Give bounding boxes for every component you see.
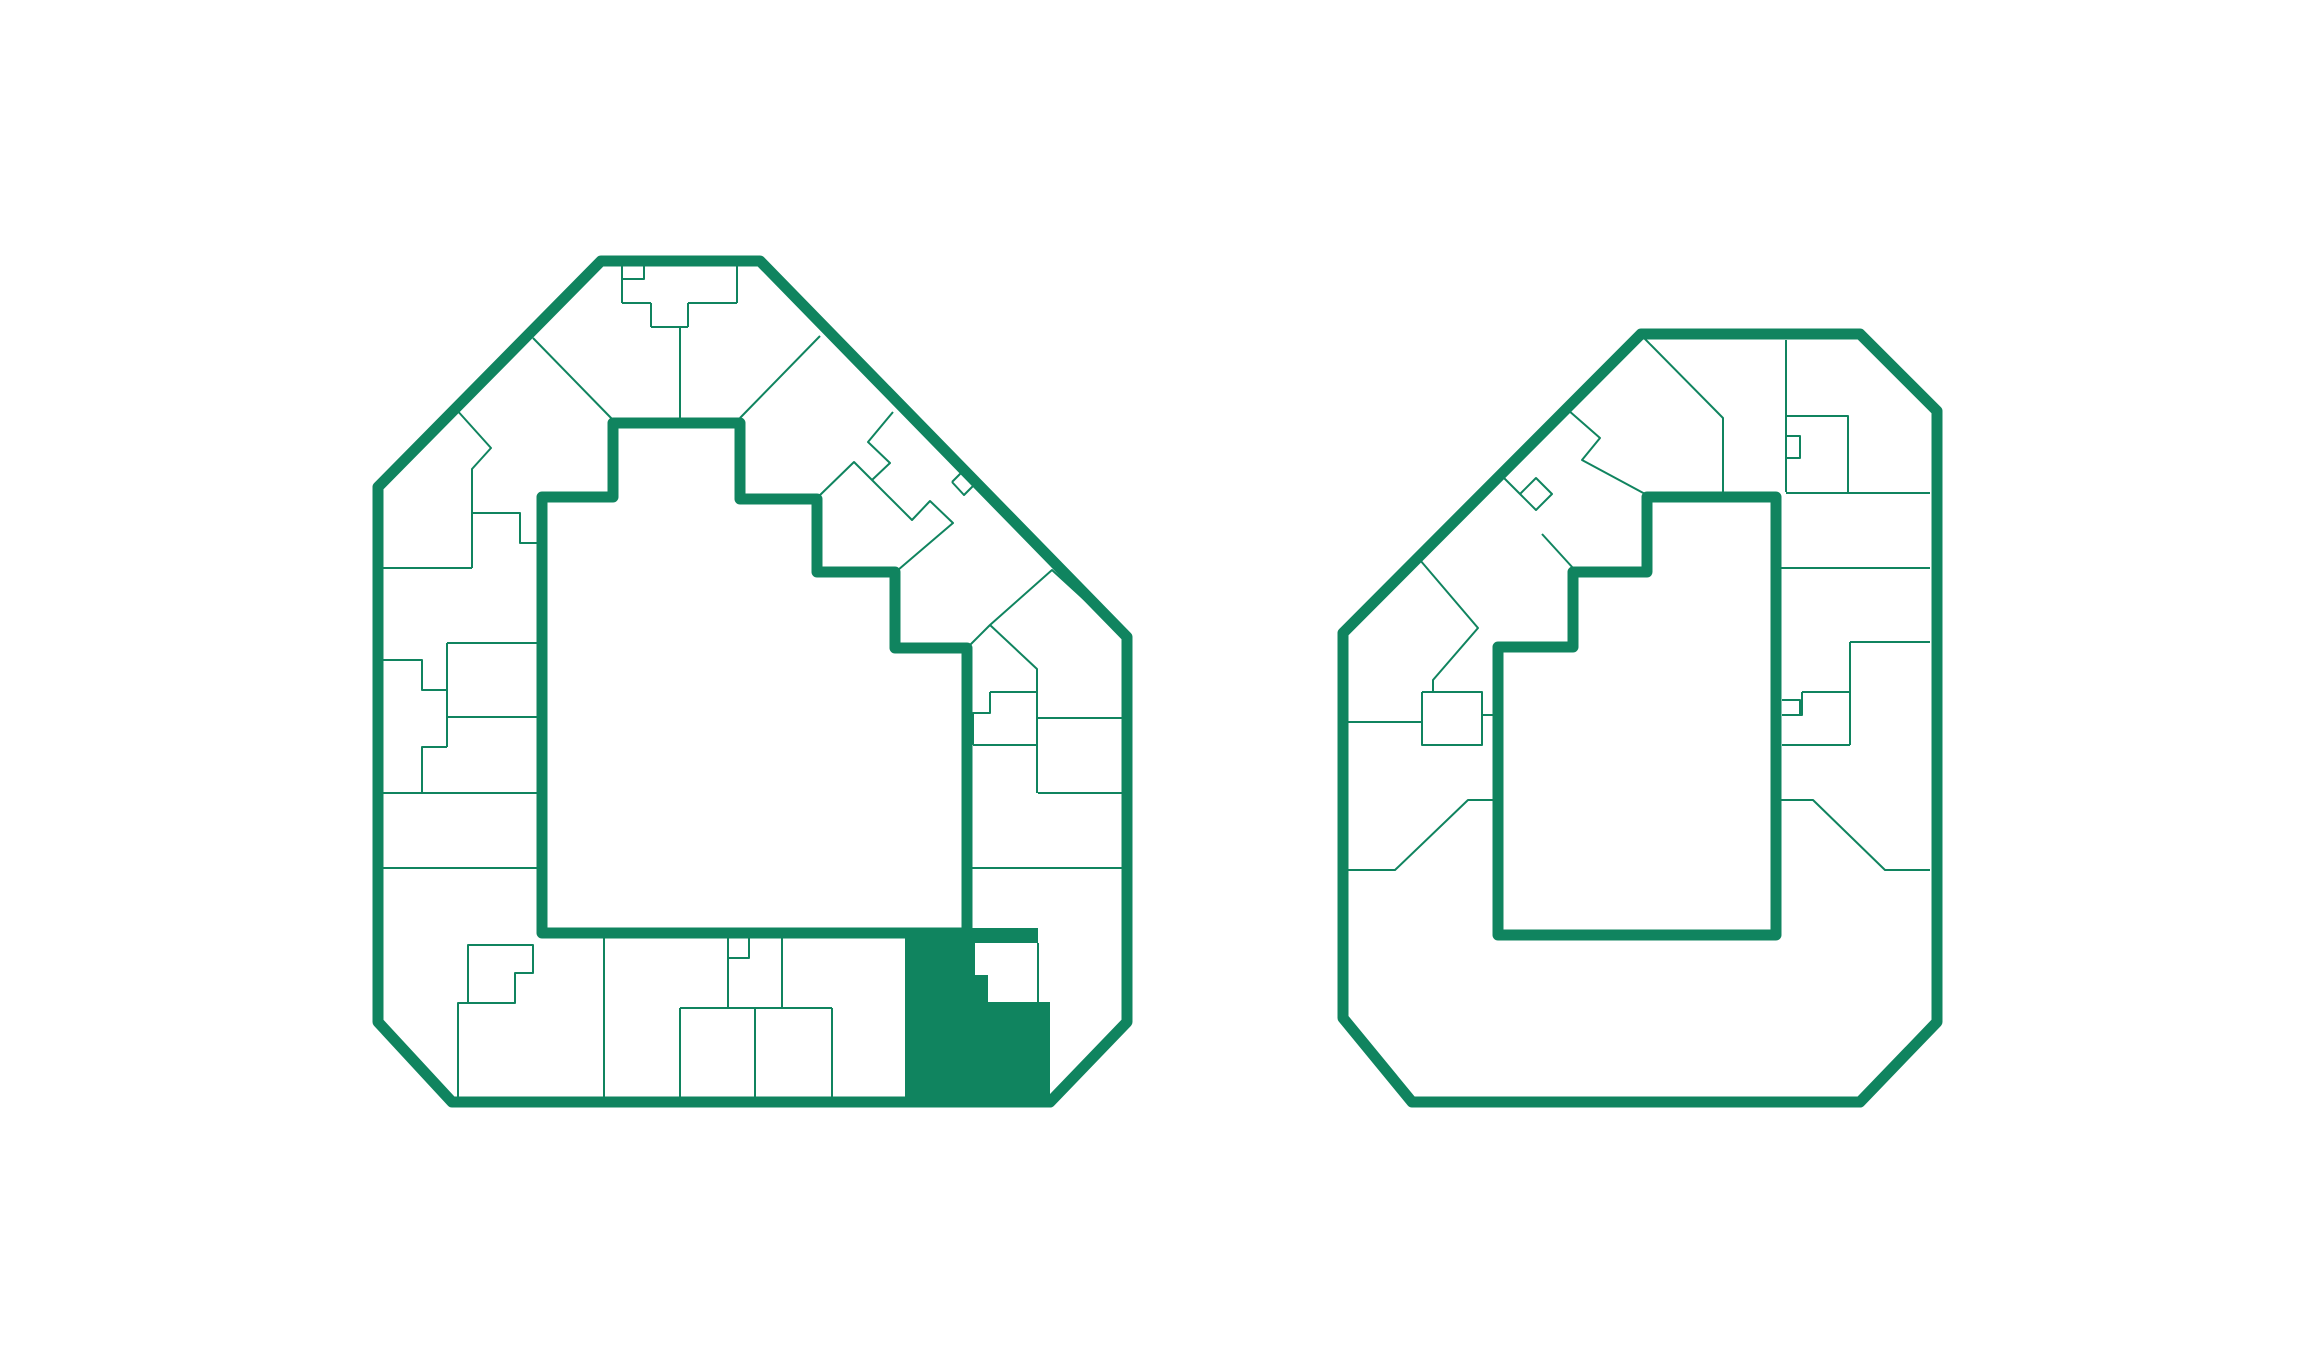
unit-boundary-line [472, 513, 537, 543]
unit-boundary-line [868, 412, 893, 480]
unit-boundary-line [422, 747, 447, 793]
unit-boundary-line [378, 660, 447, 690]
unit-boundary-line [1568, 410, 1647, 495]
courtyard-outline [542, 423, 967, 933]
unit-boundary-line [1347, 800, 1498, 870]
unit-boundary-line [455, 408, 491, 568]
selected-unit-highlight[interactable] [905, 928, 1050, 1105]
building-left-floorplan[interactable] [378, 261, 1127, 1105]
unit-boundary-line [533, 338, 613, 420]
floorplan-selector-page [0, 0, 2320, 1360]
unit-boundary-line [1776, 800, 1930, 870]
floorplan-svg [0, 0, 2320, 1360]
building-right-floorplan[interactable] [1343, 334, 1937, 1102]
unit-boundary-line [728, 938, 749, 958]
unit-boundary-line [623, 266, 644, 279]
building-outline [378, 261, 1127, 1102]
unit-boundary-line [1643, 337, 1723, 492]
unit-boundary-line [818, 462, 953, 570]
unit-boundary-line [1504, 478, 1552, 510]
courtyard-outline [1498, 497, 1776, 935]
unit-boundary-line [740, 336, 820, 418]
unit-boundary-line [1422, 692, 1482, 745]
unit-boundary-line [1542, 534, 1573, 568]
unit-boundary-line [1786, 436, 1800, 458]
unit-boundary-line [458, 945, 533, 1102]
unit-boundary-line [990, 625, 1037, 793]
unit-boundary-line [1782, 700, 1800, 715]
unit-boundary-line [973, 692, 990, 745]
unit-boundary-line [1786, 416, 1848, 493]
unit-boundary-line [1420, 560, 1478, 692]
